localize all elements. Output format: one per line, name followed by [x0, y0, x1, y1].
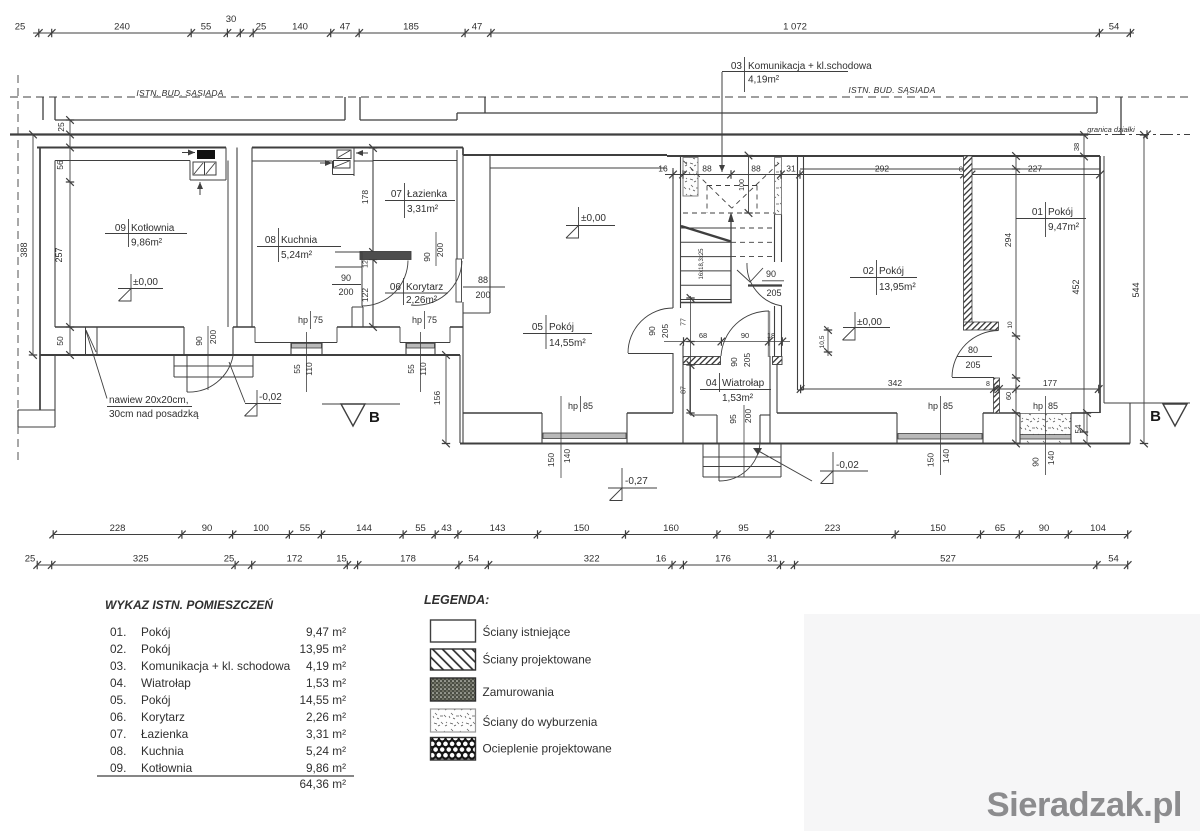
svg-text:95: 95	[738, 523, 749, 534]
svg-text:85: 85	[943, 401, 953, 411]
svg-text:Pokój: Pokój	[141, 642, 171, 656]
svg-text:9,86 m²: 9,86 m²	[306, 761, 346, 775]
svg-text:294: 294	[1003, 233, 1013, 247]
svg-text:160: 160	[663, 523, 679, 534]
svg-text:±0,00: ±0,00	[857, 317, 882, 328]
svg-text:85: 85	[1048, 401, 1058, 411]
svg-text:38: 38	[1072, 143, 1081, 151]
svg-text:hp: hp	[568, 401, 578, 411]
svg-text:03.: 03.	[110, 659, 126, 673]
svg-text:54: 54	[468, 554, 479, 565]
svg-text:hp: hp	[1033, 401, 1043, 411]
svg-text:144: 144	[356, 523, 372, 534]
svg-text:200: 200	[338, 287, 353, 297]
svg-text:80: 80	[968, 345, 978, 355]
svg-text:150: 150	[926, 453, 936, 467]
svg-text:Kuchnia: Kuchnia	[281, 235, 318, 246]
svg-text:68: 68	[699, 331, 707, 340]
svg-text:02: 02	[863, 266, 875, 277]
svg-text:322: 322	[584, 554, 600, 565]
svg-text:8: 8	[986, 381, 990, 388]
svg-text:90: 90	[341, 273, 351, 283]
svg-text:08.: 08.	[110, 744, 126, 758]
svg-text:156: 156	[432, 391, 442, 405]
svg-text:2,26m²: 2,26m²	[406, 295, 438, 306]
svg-text:Korytarz: Korytarz	[141, 710, 185, 724]
svg-text:47: 47	[340, 22, 351, 33]
svg-text:Wiatrołap: Wiatrołap	[722, 378, 765, 389]
svg-text:04: 04	[706, 378, 718, 389]
svg-text:140: 140	[292, 22, 308, 33]
svg-text:ISTN. BUD. SĄSIADA: ISTN. BUD. SĄSIADA	[136, 88, 223, 98]
svg-text:140: 140	[1046, 451, 1056, 465]
svg-text:Kuchnia: Kuchnia	[141, 744, 184, 758]
svg-text:87: 87	[681, 386, 688, 394]
svg-text:-0,02: -0,02	[836, 460, 859, 471]
svg-text:200: 200	[743, 409, 753, 423]
svg-text:10: 10	[1007, 321, 1014, 329]
svg-text:100: 100	[253, 523, 269, 534]
svg-text:1,53m²: 1,53m²	[722, 393, 754, 404]
svg-text:5,24 m²: 5,24 m²	[306, 744, 346, 758]
svg-text:104: 104	[1090, 523, 1106, 534]
svg-text:342: 342	[888, 378, 902, 388]
svg-text:64,36 m²: 64,36 m²	[299, 777, 346, 791]
svg-text:Wiatrołap: Wiatrołap	[141, 676, 191, 690]
svg-text:205: 205	[965, 360, 980, 370]
svg-text:140: 140	[941, 449, 951, 463]
svg-text:4,19 m²: 4,19 m²	[306, 659, 346, 673]
svg-text:Kotłownia: Kotłownia	[131, 223, 175, 234]
svg-text:18: 18	[767, 331, 775, 340]
svg-text:13,95 m²: 13,95 m²	[299, 642, 346, 656]
svg-text:14,55m²: 14,55m²	[549, 338, 586, 349]
svg-text:90: 90	[1031, 457, 1041, 467]
svg-text:Łazienka: Łazienka	[141, 727, 189, 741]
svg-text:09: 09	[115, 223, 127, 234]
svg-text:228: 228	[110, 523, 126, 534]
svg-text:43: 43	[441, 523, 452, 534]
svg-text:30: 30	[226, 14, 237, 25]
svg-text:88: 88	[478, 275, 488, 285]
svg-text:55: 55	[300, 523, 311, 534]
svg-text:150: 150	[574, 523, 590, 534]
svg-text:100: 100	[739, 179, 746, 191]
svg-text:55: 55	[201, 22, 212, 33]
svg-text:60: 60	[1004, 392, 1013, 400]
svg-text:90: 90	[202, 523, 213, 534]
svg-text:25: 25	[56, 122, 66, 132]
svg-text:325: 325	[133, 554, 149, 565]
svg-text:90: 90	[1039, 523, 1050, 534]
svg-text:12: 12	[363, 260, 370, 268]
svg-text:227: 227	[1028, 164, 1042, 174]
svg-text:LEGENDA:: LEGENDA:	[424, 593, 489, 607]
svg-text:205: 205	[742, 353, 752, 367]
svg-text:200: 200	[475, 290, 490, 300]
svg-text:01: 01	[1032, 207, 1044, 218]
svg-text:90: 90	[766, 269, 776, 279]
svg-text:Komunikacja + kl. schodowa: Komunikacja + kl. schodowa	[141, 659, 291, 673]
svg-text:Pokój: Pokój	[549, 322, 574, 333]
svg-text:65: 65	[995, 523, 1006, 534]
svg-text:±0,00: ±0,00	[581, 213, 606, 224]
svg-text:1 072: 1 072	[783, 22, 807, 33]
svg-text:07.: 07.	[110, 727, 126, 741]
svg-text:Ściany do wyburzenia: Ściany do wyburzenia	[483, 715, 598, 729]
svg-text:172: 172	[287, 554, 303, 565]
svg-text:25: 25	[224, 554, 235, 565]
svg-text:205: 205	[766, 288, 781, 298]
svg-text:177: 177	[1043, 378, 1057, 388]
svg-text:-0,02: -0,02	[259, 392, 282, 403]
svg-text:1,53 m²: 1,53 m²	[306, 676, 346, 690]
svg-text:150: 150	[546, 453, 556, 467]
svg-text:54: 54	[1108, 554, 1119, 565]
svg-text:47: 47	[472, 22, 483, 33]
svg-text:200: 200	[435, 243, 445, 257]
svg-text:75: 75	[427, 315, 437, 325]
svg-text:205: 205	[660, 324, 670, 338]
svg-text:±0,00: ±0,00	[133, 277, 158, 288]
svg-text:hp: hp	[298, 315, 308, 325]
svg-text:-0,27: -0,27	[625, 476, 648, 487]
svg-text:9,47 m²: 9,47 m²	[306, 625, 346, 639]
svg-text:56: 56	[55, 160, 65, 170]
svg-text:55: 55	[406, 364, 416, 374]
svg-text:4,19m²: 4,19m²	[748, 75, 780, 86]
svg-text:388: 388	[19, 242, 29, 257]
svg-text:140: 140	[562, 449, 572, 463]
svg-text:110: 110	[418, 362, 428, 376]
svg-text:16: 16	[656, 554, 667, 565]
svg-text:5,24m²: 5,24m²	[281, 250, 313, 261]
svg-text:9,86m²: 9,86m²	[131, 238, 163, 249]
svg-text:90: 90	[422, 252, 432, 262]
svg-text:2,26 m²: 2,26 m²	[306, 710, 346, 724]
svg-text:54: 54	[1074, 424, 1083, 433]
svg-text:Ocieplenie projektowane: Ocieplenie projektowane	[483, 742, 613, 756]
svg-text:granica działki: granica działki	[1087, 125, 1135, 134]
svg-text:15: 15	[336, 554, 347, 565]
svg-text:WYKAZ ISTN. POMIESZCZEŃ: WYKAZ ISTN. POMIESZCZEŃ	[105, 597, 273, 612]
svg-text:Pokój: Pokój	[879, 266, 904, 277]
svg-text:90: 90	[741, 331, 749, 340]
svg-text:Łazienka: Łazienka	[407, 189, 447, 200]
svg-text:527: 527	[940, 554, 956, 565]
svg-text:9,47m²: 9,47m²	[1048, 222, 1080, 233]
svg-text:31: 31	[767, 554, 778, 565]
svg-text:Korytarz: Korytarz	[406, 282, 443, 293]
svg-text:90: 90	[647, 326, 657, 336]
svg-text:31: 31	[786, 164, 796, 174]
svg-text:03: 03	[731, 61, 743, 72]
svg-text:95: 95	[728, 414, 738, 424]
svg-text:10,5: 10,5	[819, 335, 826, 348]
svg-text:05: 05	[532, 322, 544, 333]
svg-text:292: 292	[875, 164, 889, 174]
svg-text:B: B	[1150, 408, 1161, 425]
svg-text:Pokój: Pokój	[1048, 207, 1073, 218]
svg-text:04.: 04.	[110, 676, 126, 690]
svg-text:3,31m²: 3,31m²	[407, 204, 439, 215]
svg-text:54: 54	[1109, 22, 1120, 33]
svg-text:01.: 01.	[110, 625, 126, 639]
svg-text:88: 88	[702, 164, 712, 174]
svg-text:Pokój: Pokój	[141, 693, 171, 707]
svg-text:Ściany istniejące: Ściany istniejące	[483, 625, 571, 639]
svg-text:hp: hp	[928, 401, 938, 411]
svg-text:25: 25	[256, 22, 267, 33]
svg-text:90: 90	[729, 357, 739, 367]
svg-text:B: B	[369, 409, 380, 426]
svg-text:hp: hp	[412, 315, 422, 325]
svg-text:Sieradzak.pl: Sieradzak.pl	[987, 786, 1182, 824]
svg-text:77: 77	[681, 318, 688, 326]
svg-text:05.: 05.	[110, 693, 126, 707]
svg-text:30cm nad posadzką: 30cm nad posadzką	[109, 409, 199, 420]
svg-text:16: 16	[658, 164, 668, 174]
svg-text:176: 176	[715, 554, 731, 565]
svg-text:55: 55	[292, 364, 302, 374]
svg-text:Ściany projektowane: Ściany projektowane	[483, 653, 592, 667]
svg-text:13,95m²: 13,95m²	[879, 282, 916, 293]
svg-text:240: 240	[114, 22, 130, 33]
svg-text:06.: 06.	[110, 710, 126, 724]
svg-text:nawiew 20x20cm,: nawiew 20x20cm,	[109, 395, 188, 406]
svg-text:08: 08	[265, 235, 277, 246]
svg-text:14,55 m²: 14,55 m²	[299, 693, 346, 707]
svg-text:75: 75	[313, 315, 323, 325]
svg-text:150: 150	[930, 523, 946, 534]
svg-text:3,31 m²: 3,31 m²	[306, 727, 346, 741]
svg-text:90: 90	[194, 336, 204, 346]
svg-text:143: 143	[490, 523, 506, 534]
svg-text:16x18,3x25: 16x18,3x25	[699, 248, 705, 280]
svg-text:8: 8	[959, 165, 963, 174]
svg-text:185: 185	[403, 22, 419, 33]
svg-text:Zamurowania: Zamurowania	[483, 685, 555, 699]
svg-text:110: 110	[304, 362, 314, 376]
svg-text:178: 178	[400, 554, 416, 565]
svg-text:Pokój: Pokój	[141, 625, 171, 639]
svg-text:88: 88	[751, 164, 761, 174]
svg-text:178: 178	[360, 190, 370, 204]
svg-text:09.: 09.	[110, 761, 126, 775]
svg-text:85: 85	[583, 401, 593, 411]
svg-text:55: 55	[415, 523, 426, 534]
svg-text:ISTN. BUD. SĄSIADA: ISTN. BUD. SĄSIADA	[848, 85, 935, 95]
svg-text:Kotłownia: Kotłownia	[141, 761, 193, 775]
svg-text:544: 544	[1131, 282, 1141, 297]
svg-text:200: 200	[208, 330, 218, 344]
svg-text:50: 50	[55, 336, 65, 346]
svg-text:Komunikacja + kl.schodowa: Komunikacja + kl.schodowa	[748, 61, 872, 72]
svg-text:06: 06	[390, 282, 402, 293]
svg-text:07: 07	[391, 189, 403, 200]
svg-text:25: 25	[25, 554, 36, 565]
svg-text:223: 223	[825, 523, 841, 534]
svg-text:02.: 02.	[110, 642, 126, 656]
svg-text:452: 452	[1071, 279, 1081, 294]
svg-text:25: 25	[15, 22, 26, 33]
